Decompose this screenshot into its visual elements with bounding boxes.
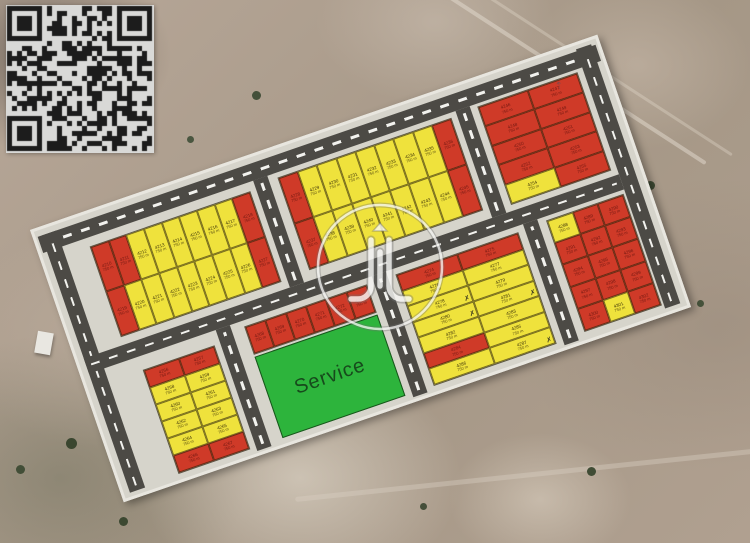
north-arrow-icon: ⇡ xyxy=(554,80,564,92)
service-area-label: Service xyxy=(291,353,368,399)
satellite-scene: 4210750 m4211750 m4212750 m4213750 m4214… xyxy=(0,0,750,543)
qr-code xyxy=(6,5,154,153)
